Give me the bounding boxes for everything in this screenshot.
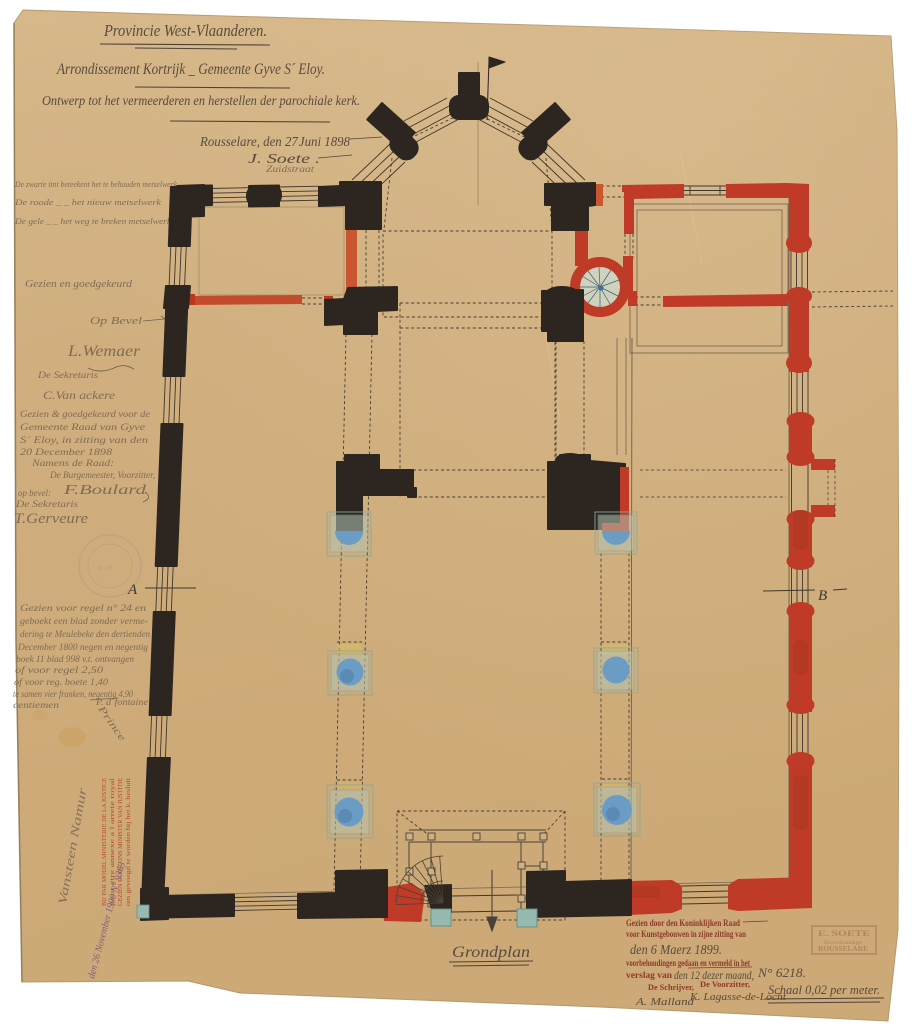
svg-text:op bevel:: op bevel:: [18, 489, 51, 499]
svg-text:De Sekretaris: De Sekretaris: [15, 500, 79, 510]
svg-text:De zwarte tint beteekent het t: De zwarte tint beteekent het te behouden…: [14, 179, 177, 189]
svg-text:Ontwerp tot het vermeerderen e: Ontwerp tot het vermeerderen en herstell…: [42, 93, 360, 108]
svg-text:De Sekretaris: De Sekretaris: [37, 371, 99, 381]
svg-text:Grondplan: Grondplan: [452, 944, 530, 961]
svg-text:Gemeente Raad van Gyve: Gemeente Raad van Gyve: [20, 423, 145, 433]
svg-text:Provincie West-Vlaanderen.: Provincie West-Vlaanderen.: [103, 21, 267, 40]
svg-text:of voor regel 2,50: of voor regel 2,50: [15, 665, 104, 675]
svg-text:Schaal 0,02 per meter.: Schaal 0,02 per meter.: [768, 982, 880, 997]
svg-text:Arrondissement Kortrijk _ Geme: Arrondissement Kortrijk _ Gemeente Gyve …: [56, 61, 325, 78]
svg-text:Op Bevel: Op Bevel: [90, 316, 142, 327]
svg-text:★·★: ★·★: [96, 563, 113, 572]
svg-text:Gezien door den Koninklijken R: Gezien door den Koninklijken Raad: [626, 918, 740, 928]
svg-text:BIJ PAR MODEL MINISTERIE DE LA: BIJ PAR MODEL MINISTERIE DE LA JUSTICE: [101, 778, 108, 906]
svg-text:De Schrijver,: De Schrijver,: [648, 982, 694, 992]
svg-text:A. Malland: A. Malland: [635, 997, 696, 1008]
svg-text:De Burgemeester, Voorzitter,: De Burgemeester, Voorzitter,: [49, 471, 155, 481]
svg-text:C.Van ackere: C.Van ackere: [43, 388, 116, 402]
svg-text:Namens de Raad:: Namens de Raad:: [31, 459, 114, 469]
svg-text:dering te Meulebeke den dert: dering te Meulebeke den dertienden: [20, 629, 150, 639]
svg-text:ROUSSELARE: ROUSSELARE: [818, 945, 868, 953]
svg-text:om gevoegd te worden bij het k: om gevoegd te worden bij het k. besluit: [125, 778, 132, 906]
svg-text:20 December 1898: 20 December 1898: [20, 448, 112, 458]
svg-text:N° 6218.: N° 6218.: [757, 965, 806, 980]
svg-text:S´ Eloy, in zitting van den: S´ Eloy, in zitting van den: [20, 435, 148, 446]
svg-text:B: B: [818, 588, 827, 604]
svg-text:of voor reg. boete 1,40: of voor reg. boete 1,40: [14, 677, 109, 687]
svg-text:De Voorzitter,: De Voorzitter,: [700, 979, 750, 989]
svg-text:F.Boulard: F.Boulard: [63, 483, 148, 498]
svg-text:Gezien en goedgekeurd: Gezien en goedgekeurd: [25, 278, 133, 290]
svg-text:A: A: [127, 582, 138, 598]
svg-text:T.Gerveure: T.Gerveure: [14, 511, 88, 527]
svg-text:voorbehoudingen gedaan en verm: voorbehoudingen gedaan en vermeld in het: [626, 958, 750, 968]
svg-text:Gezien & goedgekeurd voor de: Gezien & goedgekeurd voor de: [20, 410, 150, 420]
svg-text:E. SOETE: E. SOETE: [818, 929, 870, 938]
svg-text:Gezien voor regel n° 24 en: Gezien voor regel n° 24 en: [20, 603, 147, 613]
svg-text:voor Kunstgebouwen in zijne zi: voor Kunstgebouwen in zijne zitting van: [626, 929, 746, 939]
svg-text:Rousselare, den 27 Juni 1898: Rousselare, den 27 Juni 1898: [199, 134, 350, 149]
svg-text:centiemen: centiemen: [13, 700, 60, 710]
svg-text:geboekt een blad zonder verme-: geboekt een blad zonder verme-: [20, 616, 148, 626]
svg-text:boek 11 blad 998 v.t. ontvange: boek 11 blad 998 v.t. ontvangen: [16, 654, 135, 664]
svg-text:Zuidstraat: Zuidstraat: [266, 164, 315, 174]
svg-text:December 1800 negen en negenti: December 1800 negen en negentig: [17, 642, 149, 652]
svg-text:L.Wemaer: L.Wemaer: [67, 343, 141, 360]
svg-text:De roode _ _ het n: De roode _ _ het nieuw metselwerk: [14, 197, 161, 207]
svg-text:verslag van: verslag van: [626, 970, 672, 980]
svg-text:De gele _ _ het weg: De gele _ _ het weg te breken metselwerk: [14, 216, 171, 226]
svg-text:den 6 Maerz 1899.: den 6 Maerz 1899.: [630, 943, 722, 958]
